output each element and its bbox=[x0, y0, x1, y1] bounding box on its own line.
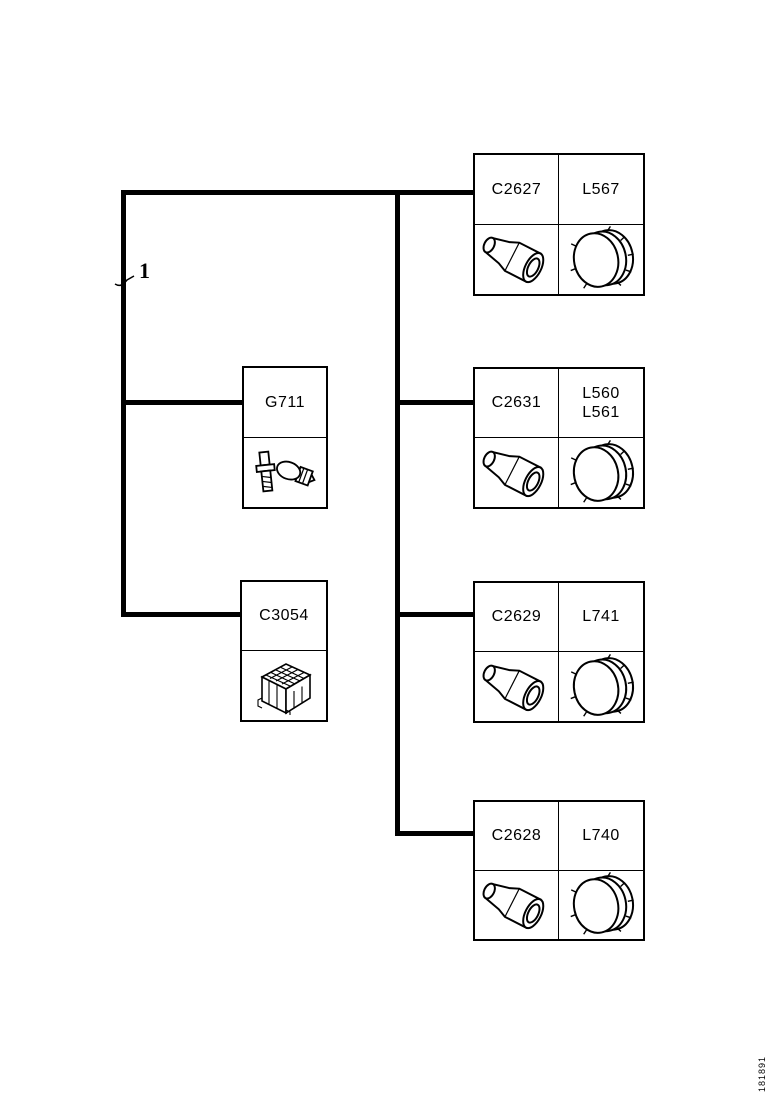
connector-code-label: C2628 bbox=[475, 802, 559, 871]
part-group-c2627: C2627 L567 bbox=[473, 153, 645, 296]
doc-id-text: 181891 bbox=[757, 1056, 767, 1092]
bulb-and-screw-icon bbox=[244, 438, 326, 508]
part-group-c2631: C2631 L560 L561 bbox=[473, 367, 645, 509]
part-box-c3054: C3054 bbox=[240, 580, 328, 722]
lamp-code-label: L560 L561 bbox=[559, 369, 643, 438]
lamp-code-label: L567 bbox=[559, 155, 643, 225]
lamp-lens-icon bbox=[559, 652, 643, 721]
part-group-c2629: C2629 L741 bbox=[473, 581, 645, 723]
part-box-g711: G711 bbox=[242, 366, 328, 509]
branch-line-c3054 bbox=[121, 612, 240, 617]
connector-code-label: C2627 bbox=[475, 155, 559, 225]
lamp-code-label: L741 bbox=[559, 583, 643, 652]
branch-line-c2629 bbox=[395, 612, 473, 617]
lamp-lens-icon bbox=[559, 871, 643, 940]
connector-block-icon bbox=[242, 651, 326, 720]
lamp-lens-icon bbox=[559, 225, 643, 295]
connector-code-label: C2629 bbox=[475, 583, 559, 652]
part-group-c2628: C2628 L740 bbox=[473, 800, 645, 941]
lamp-lens-icon bbox=[559, 438, 643, 507]
part-code-label: C3054 bbox=[242, 582, 326, 651]
parts-diagram-page: 1 G711 C3054 bbox=[0, 0, 778, 1100]
top-branch-line bbox=[121, 190, 473, 195]
branch-line-c2631 bbox=[395, 400, 473, 405]
lamp-code-label: L740 bbox=[559, 802, 643, 871]
callout-number: 1 bbox=[139, 258, 150, 284]
right-trunk-line bbox=[395, 190, 400, 836]
bulb-socket-icon bbox=[475, 225, 559, 295]
connector-code-label: C2631 bbox=[475, 369, 559, 438]
bulb-socket-icon bbox=[475, 871, 559, 940]
bulb-socket-icon bbox=[475, 652, 559, 721]
branch-line-g711 bbox=[121, 400, 242, 405]
bulb-socket-icon bbox=[475, 438, 559, 507]
part-code-label: G711 bbox=[244, 368, 326, 438]
branch-line-c2628 bbox=[395, 831, 473, 836]
